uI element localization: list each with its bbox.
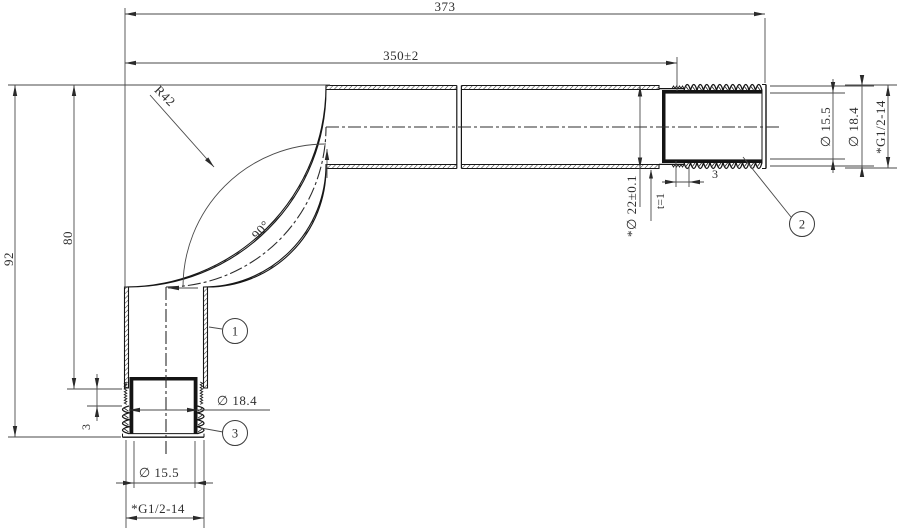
tube-inner-wall [204,165,660,389]
pipe-elbow-drawing: 373 350±2 92 80 3 R42 90° *∅ 22±0.1 t=1 … [0,0,900,529]
balloon-callouts: 1 2 3 [223,212,815,446]
dim-wall-thickness: t=1 [653,193,667,209]
dim-shoulder-length-bottom: 3 [79,424,93,430]
bent-tube-outline [125,84,660,388]
centerlines [166,127,780,455]
right-thread-top [684,85,762,91]
dim-overall-height: 92 [1,252,16,266]
dim-bottom-thread: *G1/2-14 [131,501,185,516]
dim-tube-diameter: *∅ 22±0.1 [624,175,639,237]
dim-straight-length: 350±2 [383,48,419,63]
dim-bend-radius: R42 [152,82,179,109]
balloon-1: 1 [223,319,248,344]
balloon-1-label: 1 [232,325,238,339]
balloon-3-label: 3 [232,427,238,441]
dim-bend-angle: 90° [248,217,272,242]
bottom-thread-fitting [123,377,205,437]
dim-right-od: ∅ 18.4 [846,107,861,147]
dim-shoulder-length-right: 3 [712,167,718,181]
balloon-2-label: 2 [799,218,805,232]
dim-height-to-shoulder: 80 [60,231,75,245]
dim-bottom-bore: ∅ 15.5 [139,465,179,480]
dim-right-thread: *G1/2-14 [873,100,888,154]
dim-bottom-od: ∅ 18.4 [217,393,257,408]
dim-overall-length: 373 [435,0,456,14]
balloon-3: 3 [223,421,248,446]
dim-right-bore: ∅ 15.5 [818,107,833,147]
balloon-2: 2 [790,212,815,237]
centerline-bend-arc [166,127,326,287]
engineering-drawing-sheet: 373 350±2 92 80 3 R42 90° *∅ 22±0.1 t=1 … [0,0,900,529]
